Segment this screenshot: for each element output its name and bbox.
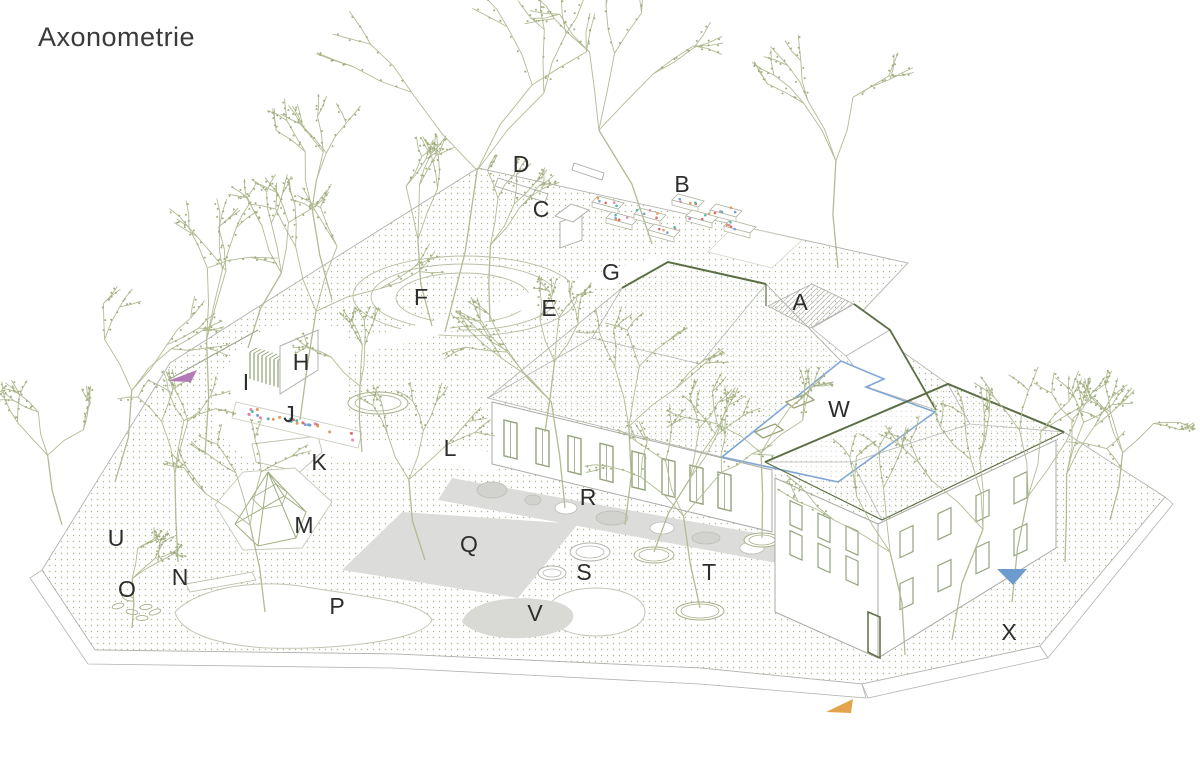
site-label-W: W [828, 396, 850, 422]
site-label-Q: Q [460, 531, 478, 557]
site-label-G: G [602, 259, 620, 285]
site-label-F: F [414, 284, 428, 310]
site-label-D: D [513, 151, 530, 177]
site-label-P: P [329, 593, 344, 619]
site-label-L: L [444, 435, 457, 461]
main-entrance-marker [826, 699, 853, 713]
site-label-T: T [702, 559, 716, 585]
site-label-U: U [108, 525, 125, 551]
site-label-J: J [283, 401, 295, 427]
site-label-H: H [293, 349, 310, 375]
site-label-M: M [294, 512, 313, 538]
site-drawing: ABCDEFGHIJKLMNOPQRSTUVWX [0, 0, 1200, 771]
site-label-N: N [172, 564, 189, 590]
site-label-V: V [527, 600, 543, 626]
site-label-B: B [674, 171, 689, 197]
site-label-R: R [580, 484, 597, 510]
site-label-S: S [576, 559, 591, 585]
site-label-E: E [541, 295, 556, 321]
site-label-A: A [792, 289, 808, 315]
site-label-C: C [533, 196, 550, 222]
axonometric-site-plan: Axonometrie ABCDEFGHIJKLMNOPQRSTUVWX [0, 0, 1200, 771]
site-label-K: K [311, 449, 327, 475]
site-label-X: X [1001, 619, 1016, 645]
site-label-I: I [243, 369, 249, 395]
site-label-O: O [118, 576, 136, 602]
